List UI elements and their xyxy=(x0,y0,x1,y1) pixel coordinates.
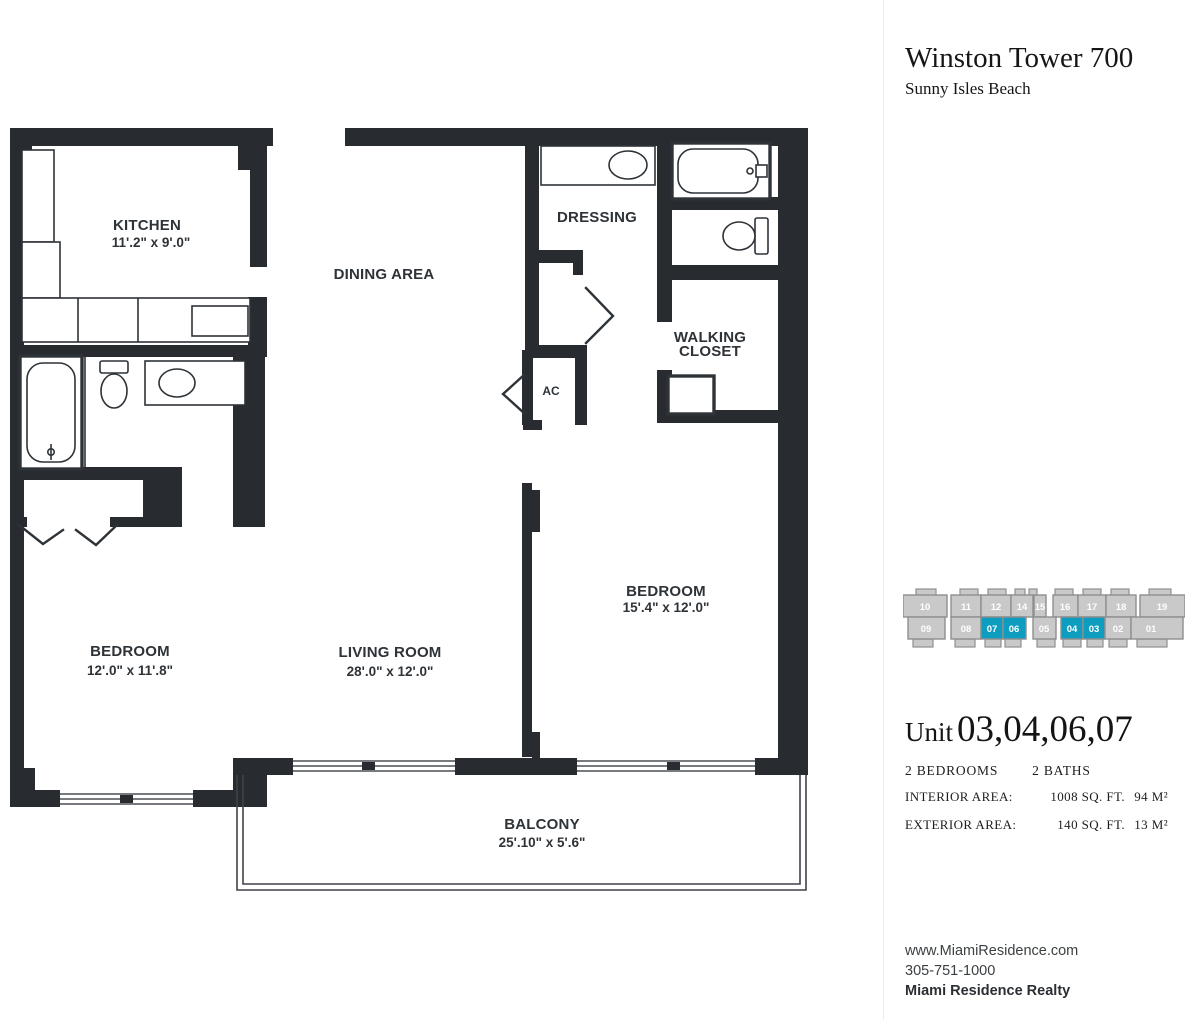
dressing-label: DRESSING xyxy=(557,209,637,226)
unit-blocks-bottom: 09 08 07 06 05 04 03 02 01 xyxy=(908,617,1183,639)
svg-text:07: 07 xyxy=(987,624,998,635)
interior-area-label: INTERIOR AREA: xyxy=(905,789,1013,804)
svg-text:09: 09 xyxy=(921,624,932,635)
realty-footer: www.MiamiResidence.com 305-751-1000 Miam… xyxy=(905,941,1078,1001)
exterior-area-label: EXTERIOR AREA: xyxy=(905,817,1016,832)
svg-text:02: 02 xyxy=(1113,624,1124,635)
interior-area-metric: 94 M² xyxy=(1134,789,1168,805)
bed-bath-line: 2 BEDROOMS2 BATHS xyxy=(905,763,1125,779)
unit-blocks-top: 10 11 12 14 15 16 17 18 19 xyxy=(903,595,1185,617)
living-room-label: LIVING ROOM xyxy=(338,644,441,661)
svg-text:03: 03 xyxy=(1089,624,1100,635)
bathtub-icon xyxy=(672,143,770,199)
bedroom-left-label: BEDROOM xyxy=(90,643,170,660)
building-title: Winston Tower 700 xyxy=(905,42,1133,75)
svg-text:16: 16 xyxy=(1060,602,1071,613)
svg-text:04: 04 xyxy=(1067,624,1078,635)
svg-text:10: 10 xyxy=(920,602,931,613)
window-bands xyxy=(60,761,755,804)
floor-plan: KITCHEN 11'.2" x 9'.0" DINING AREA DRESS… xyxy=(0,0,883,1020)
unit-heading: Unit 03,04,06,07 xyxy=(905,708,1133,751)
company-name: Miami Residence Realty xyxy=(905,981,1078,1001)
dining-area-label: DINING AREA xyxy=(334,266,435,283)
kitchen-label: KITCHEN xyxy=(113,217,181,234)
unit-word: Unit xyxy=(905,717,953,747)
toilet-icon xyxy=(100,361,128,408)
closet-box-icon xyxy=(668,376,714,414)
toilet-icon xyxy=(723,218,768,254)
sink-vanity-icon xyxy=(145,361,245,405)
svg-text:15: 15 xyxy=(1035,602,1046,613)
bedroom-left-dims: 12'.0" x 11'.8" xyxy=(87,663,173,678)
svg-text:05: 05 xyxy=(1039,624,1050,635)
exterior-area-metric: 13 M² xyxy=(1134,817,1168,833)
bedroom-right-dims: 15'.4" x 12'.0" xyxy=(623,600,710,615)
unit-numbers: 03,04,06,07 xyxy=(957,709,1133,750)
svg-text:18: 18 xyxy=(1116,602,1127,613)
bedrooms-count: 2 BEDROOMS xyxy=(905,763,998,778)
exterior-area-row: EXTERIOR AREA: 140 SQ. FT. 13 M² xyxy=(905,817,1168,833)
interior-area-sqft: 1008 SQ. FT. xyxy=(1050,789,1125,805)
page: KITCHEN 11'.2" x 9'.0" DINING AREA DRESS… xyxy=(0,0,1186,1020)
baths-count: 2 BATHS xyxy=(1032,763,1091,778)
ac-label: AC xyxy=(542,384,560,398)
interior-area-row: INTERIOR AREA: 1008 SQ. FT. 94 M² xyxy=(905,789,1168,805)
exterior-area-sqft: 140 SQ. FT. xyxy=(1057,817,1125,833)
svg-text:14: 14 xyxy=(1017,602,1028,613)
svg-text:06: 06 xyxy=(1009,624,1020,635)
svg-text:11: 11 xyxy=(961,602,972,613)
website-text: www.MiamiResidence.com xyxy=(905,941,1078,961)
building-subtitle: Sunny Isles Beach xyxy=(905,79,1031,99)
building-unit-map: 10 11 12 14 15 16 17 18 19 09 08 07 06 0… xyxy=(903,586,1185,652)
living-room-dims: 28'.0" x 12'.0" xyxy=(347,664,434,679)
svg-text:08: 08 xyxy=(961,624,972,635)
kitchen-dims: 11'.2" x 9'.0" xyxy=(112,235,191,250)
svg-text:19: 19 xyxy=(1157,602,1168,613)
walking-closet-label-2: CLOSET xyxy=(679,343,741,360)
sink-vanity-icon xyxy=(541,146,655,185)
svg-text:17: 17 xyxy=(1087,602,1098,613)
balcony-label: BALCONY xyxy=(504,816,580,833)
panel-divider xyxy=(883,0,884,1020)
svg-text:01: 01 xyxy=(1146,624,1157,635)
svg-text:12: 12 xyxy=(991,602,1002,613)
balcony-dims: 25'.10" x 5'.6" xyxy=(499,835,586,850)
bathtub-icon xyxy=(20,356,82,469)
bedroom-right-label: BEDROOM xyxy=(626,583,706,600)
phone-text: 305-751-1000 xyxy=(905,961,1078,981)
